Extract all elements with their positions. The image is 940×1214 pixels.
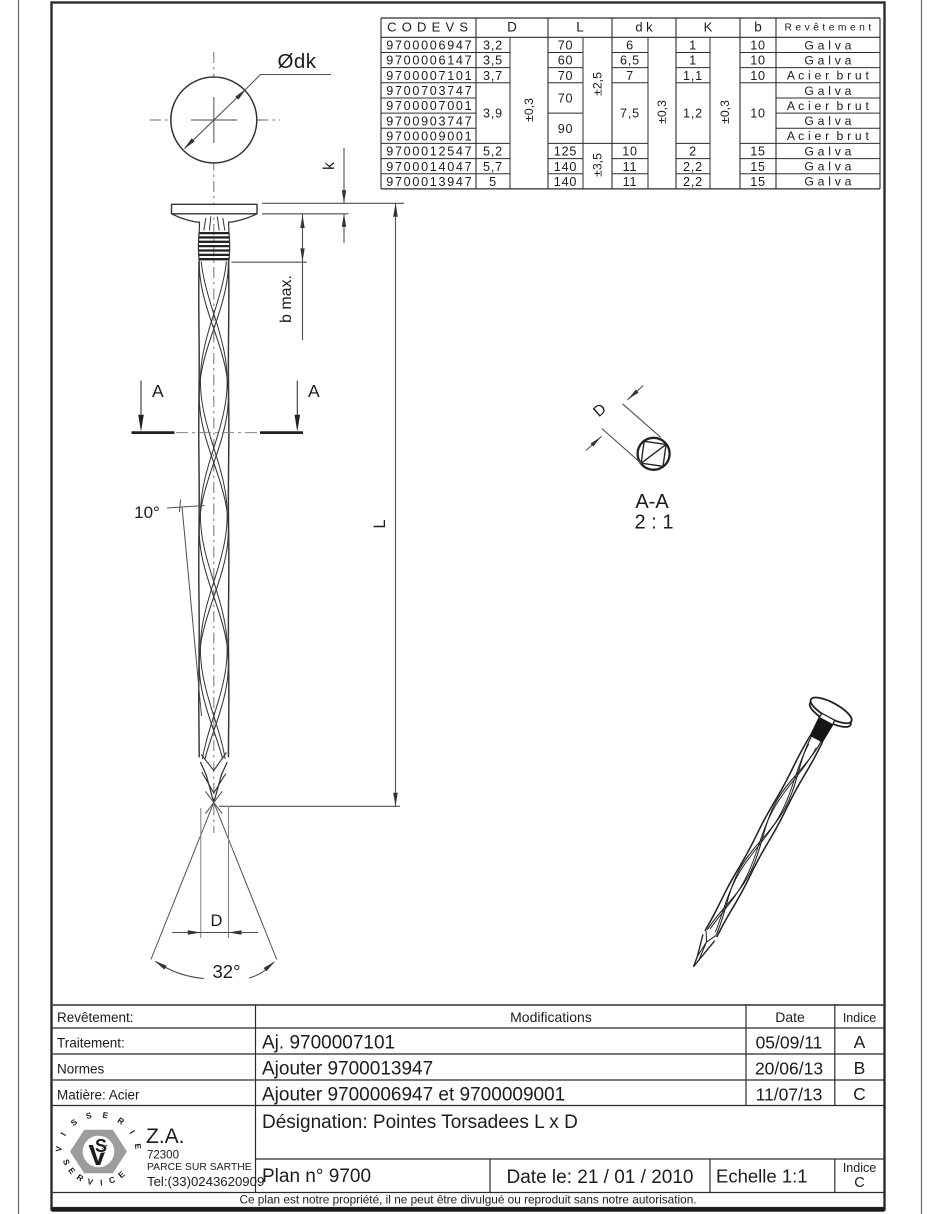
svg-text:6: 6 xyxy=(626,38,634,52)
svg-text:Indice: Indice xyxy=(843,1161,876,1175)
svg-text:140: 140 xyxy=(554,160,577,174)
svg-text:A: A xyxy=(308,381,320,401)
svg-text:Date: Date xyxy=(775,1009,805,1025)
svg-text:±0,3: ±0,3 xyxy=(655,100,669,124)
svg-text:Modifications: Modifications xyxy=(510,1009,592,1025)
svg-text:70: 70 xyxy=(558,92,574,106)
svg-text:9 7 0 0 0 0 9 0 0 1: 9 7 0 0 0 0 9 0 0 1 xyxy=(386,129,471,143)
svg-text:Normes: Normes xyxy=(57,1062,105,1077)
svg-text:05/09/11: 05/09/11 xyxy=(756,1033,823,1053)
svg-text:G a l v a: G a l v a xyxy=(804,144,851,158)
svg-text:A c i e r b r u t: A c i e r b r u t xyxy=(787,99,870,113)
svg-text:7,5: 7,5 xyxy=(620,107,640,121)
svg-text:70: 70 xyxy=(558,38,574,52)
svg-text:D: D xyxy=(507,20,517,35)
svg-text:9 7 0 0 0 0 6 9 4 7: 9 7 0 0 0 0 6 9 4 7 xyxy=(386,38,471,52)
svg-text:G a l v a: G a l v a xyxy=(804,38,851,52)
svg-text:10: 10 xyxy=(750,69,766,83)
svg-text:2,2: 2,2 xyxy=(683,175,703,189)
svg-text:G a l v a: G a l v a xyxy=(804,114,851,128)
svg-text:10: 10 xyxy=(750,54,766,68)
svg-text:72300: 72300 xyxy=(147,1150,179,1162)
svg-text:b: b xyxy=(754,20,762,35)
svg-text:A c i e r b r u t: A c i e r b r u t xyxy=(787,129,870,143)
svg-text:Echelle 1:1: Echelle 1:1 xyxy=(716,1166,808,1187)
svg-text:32°: 32° xyxy=(213,961,241,982)
svg-text:A: A xyxy=(854,1032,866,1052)
svg-text:70: 70 xyxy=(558,69,574,83)
svg-text:Tel:(33)0243620909: Tel:(33)0243620909 xyxy=(147,1174,264,1189)
svg-text:k: k xyxy=(321,162,338,170)
svg-text:D: D xyxy=(211,912,223,930)
svg-text:Indice: Indice xyxy=(843,1011,876,1025)
svg-text:5: 5 xyxy=(489,175,497,189)
svg-text:G a l v a: G a l v a xyxy=(804,175,851,189)
svg-text:d k: d k xyxy=(635,20,653,35)
svg-text:±3,5: ±3,5 xyxy=(591,153,605,177)
svg-text:9 7 0 0 0 1 4 0 4 7: 9 7 0 0 0 1 4 0 4 7 xyxy=(386,160,471,174)
svg-text:1: 1 xyxy=(689,38,697,52)
svg-text:6,5: 6,5 xyxy=(620,54,640,68)
svg-text:Aj. 9700007101: Aj. 9700007101 xyxy=(262,1033,395,1054)
svg-text:Date le: 21 / 01 / 2010: Date le: 21 / 01 / 2010 xyxy=(507,1167,694,1188)
svg-text:Z.A.: Z.A. xyxy=(146,1125,185,1148)
svg-text:10°: 10° xyxy=(134,503,160,522)
svg-text:K: K xyxy=(704,20,713,35)
svg-text:Traitement:: Traitement: xyxy=(57,1036,125,1051)
svg-text:A c i e r b r u t: A c i e r b r u t xyxy=(787,69,870,83)
svg-text:9 7 0 0 0 1 2 5 4 7: 9 7 0 0 0 1 2 5 4 7 xyxy=(386,145,471,159)
svg-text:9 7 0 0 0 0 6 1 4 7: 9 7 0 0 0 0 6 1 4 7 xyxy=(386,54,471,68)
svg-text:10: 10 xyxy=(750,38,766,52)
svg-text:Plan n° 9700: Plan n° 9700 xyxy=(262,1166,371,1187)
svg-text:Désignation: Pointes Torsadees: Désignation: Pointes Torsadees L x D xyxy=(262,1112,578,1133)
svg-text:±0,3: ±0,3 xyxy=(718,100,732,124)
svg-text:125: 125 xyxy=(554,145,577,159)
svg-text:1,2: 1,2 xyxy=(683,107,703,121)
svg-text:2 : 1: 2 : 1 xyxy=(635,512,674,534)
svg-text:G a l v a: G a l v a xyxy=(804,53,851,67)
svg-text:9 7 0 0 9 0 3 7 4 7: 9 7 0 0 9 0 3 7 4 7 xyxy=(386,114,471,128)
svg-text:11: 11 xyxy=(623,160,638,174)
svg-text:11/07/13: 11/07/13 xyxy=(756,1085,823,1105)
svg-text:2,2: 2,2 xyxy=(683,160,703,174)
svg-text:A: A xyxy=(152,381,164,401)
svg-text:2: 2 xyxy=(689,145,697,159)
svg-text:15: 15 xyxy=(750,160,766,174)
svg-text:15: 15 xyxy=(750,175,766,189)
svg-text:1: 1 xyxy=(689,54,697,68)
svg-text:5,2: 5,2 xyxy=(483,145,503,159)
svg-text:S: S xyxy=(95,1136,107,1156)
svg-text:20/06/13: 20/06/13 xyxy=(755,1059,823,1079)
svg-text:±2,5: ±2,5 xyxy=(591,72,605,96)
svg-text:Ajouter 9700013947: Ajouter 9700013947 xyxy=(262,1059,433,1080)
svg-text:C: C xyxy=(853,1084,866,1104)
svg-text:10: 10 xyxy=(750,107,766,121)
svg-text:7: 7 xyxy=(626,69,634,83)
svg-text:A-A: A-A xyxy=(635,491,669,513)
svg-text:5,7: 5,7 xyxy=(483,160,503,174)
svg-text:b max.: b max. xyxy=(278,275,295,323)
svg-text:PARCE SUR SARTHE: PARCE SUR SARTHE xyxy=(147,1162,252,1173)
svg-text:9 7 0 0 7 0 3 7 4 7: 9 7 0 0 7 0 3 7 4 7 xyxy=(386,84,471,98)
svg-text:9 7 0 0 0 0 7 0 0 1: 9 7 0 0 0 0 7 0 0 1 xyxy=(386,99,471,113)
svg-text:11: 11 xyxy=(623,175,638,189)
svg-text:L: L xyxy=(576,20,584,35)
svg-text:15: 15 xyxy=(750,145,766,159)
svg-text:L: L xyxy=(371,519,389,528)
svg-text:60: 60 xyxy=(558,54,574,68)
svg-text:10: 10 xyxy=(622,145,638,159)
svg-text:Revêtement:: Revêtement: xyxy=(57,1010,134,1025)
svg-text:Ajouter 9700006947 et 97000090: Ajouter 9700006947 et 9700009001 xyxy=(262,1085,565,1106)
svg-text:9 7 0 0 0 1 3 9 4 7: 9 7 0 0 0 1 3 9 4 7 xyxy=(386,175,471,189)
svg-text:±0,3: ±0,3 xyxy=(522,98,536,122)
svg-text:3,9: 3,9 xyxy=(483,107,503,121)
svg-text:Ødk: Ødk xyxy=(277,50,316,73)
svg-text:C: C xyxy=(854,1175,864,1191)
svg-text:9 7 0 0 0 0 7 1 0 1: 9 7 0 0 0 0 7 1 0 1 xyxy=(386,69,471,83)
svg-text:C O D E V S: C O D E V S xyxy=(387,20,469,35)
svg-text:3,7: 3,7 xyxy=(483,69,503,83)
svg-text:90: 90 xyxy=(558,122,574,136)
svg-text:140: 140 xyxy=(554,175,577,189)
svg-text:G a l v a: G a l v a xyxy=(804,160,851,174)
svg-text:1,1: 1,1 xyxy=(683,69,703,83)
svg-text:Matière: Acier: Matière: Acier xyxy=(57,1088,140,1103)
svg-text:Ce plan est notre propriété, i: Ce plan est notre propriété, il ne peut … xyxy=(239,1193,696,1207)
svg-text:3,2: 3,2 xyxy=(483,38,503,52)
svg-text:B: B xyxy=(854,1058,866,1078)
svg-text:G a l v a: G a l v a xyxy=(804,84,851,98)
svg-text:R e v ê t e m e n t: R e v ê t e m e n t xyxy=(785,23,872,34)
svg-text:3,5: 3,5 xyxy=(483,54,503,68)
